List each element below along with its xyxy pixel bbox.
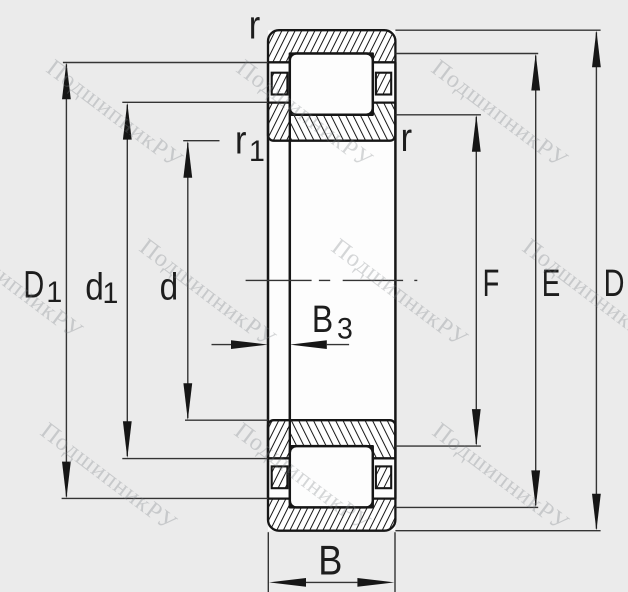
svg-text:r: r (235, 117, 246, 162)
svg-text:1: 1 (103, 278, 119, 311)
svg-text:B: B (312, 298, 333, 340)
svg-text:3: 3 (337, 313, 353, 346)
svg-text:r: r (401, 115, 412, 160)
svg-text:B: B (318, 538, 342, 584)
svg-text:1: 1 (249, 135, 265, 168)
svg-text:F: F (483, 263, 500, 305)
svg-text:d: d (85, 265, 104, 307)
svg-text:r: r (249, 2, 260, 47)
